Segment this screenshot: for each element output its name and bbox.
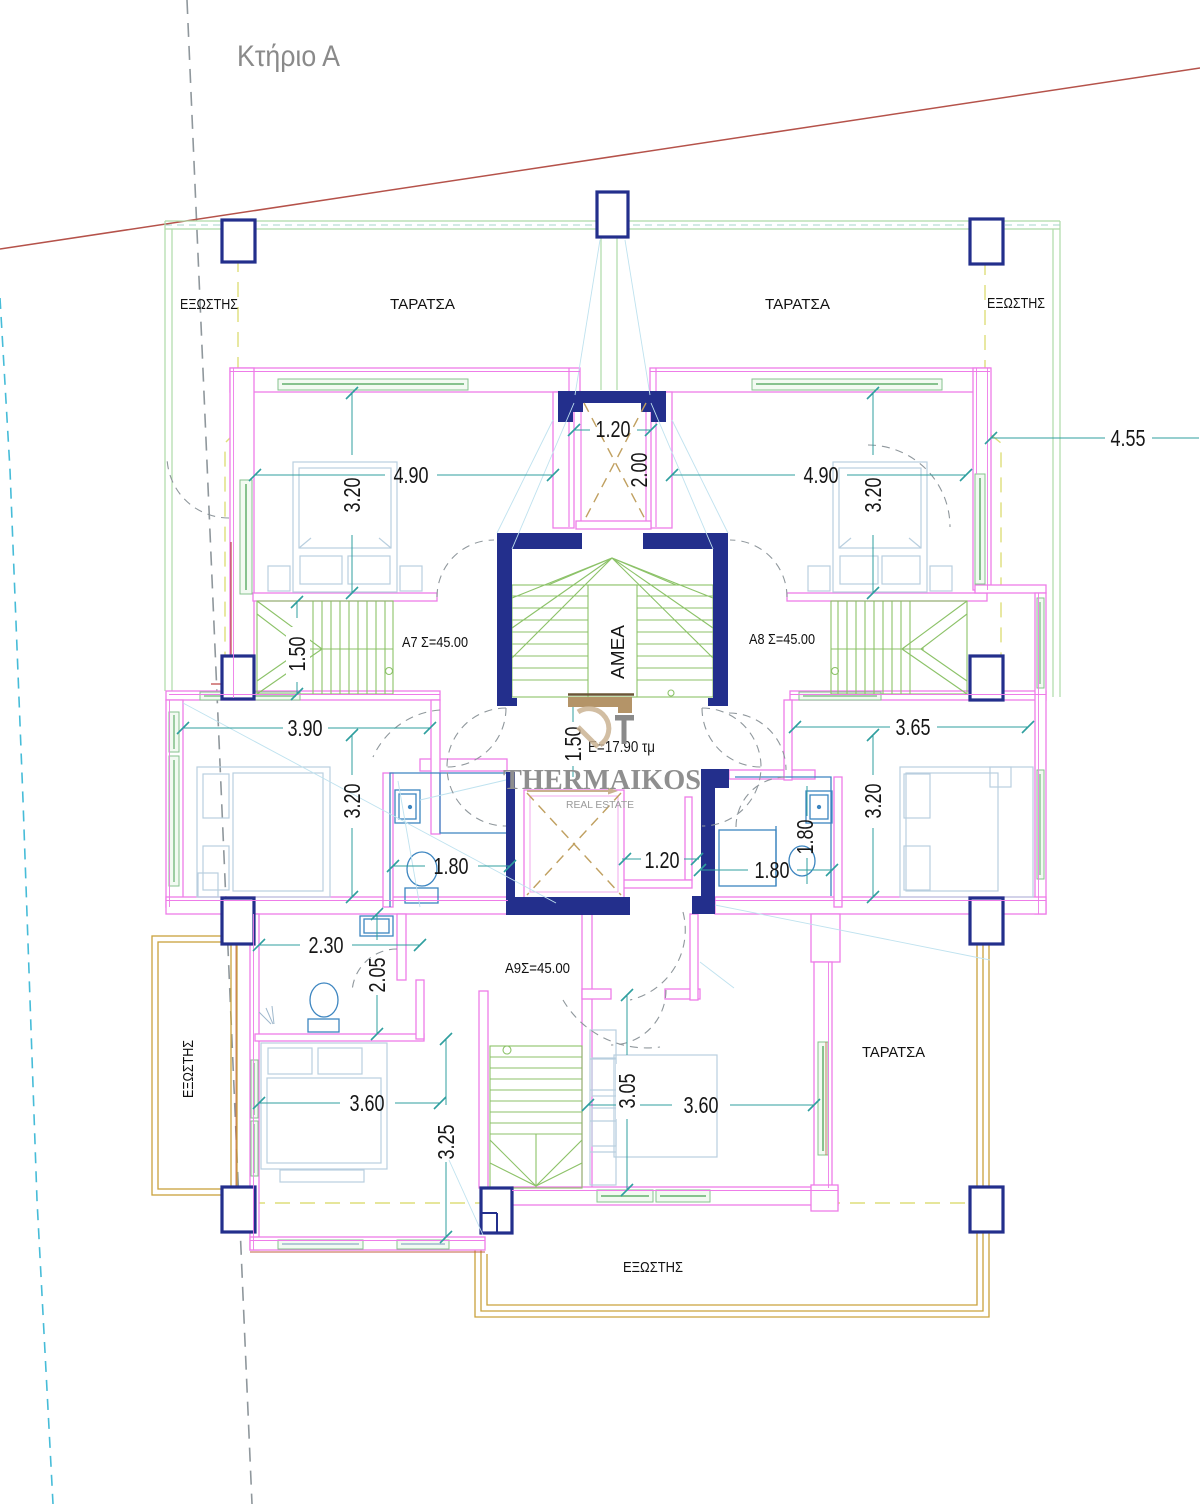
- svg-text:3.60: 3.60: [684, 1092, 719, 1118]
- svg-text:2.30: 2.30: [309, 932, 344, 958]
- svg-text:Α8 Σ=45.00: Α8 Σ=45.00: [749, 631, 815, 648]
- svg-text:2.05: 2.05: [364, 958, 390, 993]
- svg-text:Α9Σ=45.00: Α9Σ=45.00: [505, 960, 570, 977]
- svg-text:ΕΞΩΣΤΗΣ: ΕΞΩΣΤΗΣ: [987, 295, 1045, 312]
- svg-text:1.80: 1.80: [755, 857, 790, 883]
- svg-text:3.20: 3.20: [860, 478, 886, 513]
- svg-text:ΕΞΩΣΤΗΣ: ΕΞΩΣΤΗΣ: [180, 296, 238, 313]
- svg-text:ΑΜΕΑ: ΑΜΕΑ: [608, 625, 628, 679]
- svg-text:3.20: 3.20: [860, 784, 886, 819]
- svg-text:3.60: 3.60: [350, 1090, 385, 1116]
- svg-text:ΕΞΩΣΤΗΣ: ΕΞΩΣΤΗΣ: [180, 1040, 197, 1098]
- svg-text:4.55: 4.55: [1111, 425, 1146, 451]
- svg-text:1.80: 1.80: [434, 853, 469, 879]
- svg-text:THERMAIKOS: THERMAIKOS: [503, 764, 701, 796]
- svg-text:Α7 Σ=45.00: Α7 Σ=45.00: [402, 634, 468, 651]
- svg-text:ΤΑΡΑΤΣΑ: ΤΑΡΑΤΣΑ: [765, 296, 830, 313]
- svg-text:ΤΑΡΑΤΣΑ: ΤΑΡΑΤΣΑ: [862, 1044, 925, 1061]
- svg-text:4.90: 4.90: [804, 462, 839, 488]
- svg-text:3.05: 3.05: [614, 1074, 640, 1109]
- svg-text:3.65: 3.65: [896, 714, 931, 740]
- svg-text:Κτήριο Α: Κτήριο Α: [237, 40, 340, 73]
- svg-text:1.80: 1.80: [792, 820, 818, 855]
- svg-text:1.20: 1.20: [645, 847, 680, 873]
- svg-text:3.20: 3.20: [339, 478, 365, 513]
- svg-text:4.90: 4.90: [394, 462, 429, 488]
- svg-text:1.20: 1.20: [596, 416, 631, 442]
- svg-text:2.00: 2.00: [626, 453, 652, 488]
- svg-text:1.50: 1.50: [284, 637, 310, 672]
- svg-text:ΤΑΡΑΤΣΑ: ΤΑΡΑΤΣΑ: [390, 296, 455, 313]
- svg-text:REAL ESTATE: REAL ESTATE: [566, 799, 634, 811]
- svg-text:ΕΞΩΣΤΗΣ: ΕΞΩΣΤΗΣ: [623, 1259, 683, 1276]
- svg-text:3.20: 3.20: [339, 784, 365, 819]
- svg-text:3.25: 3.25: [433, 1125, 459, 1160]
- svg-text:3.90: 3.90: [288, 715, 323, 741]
